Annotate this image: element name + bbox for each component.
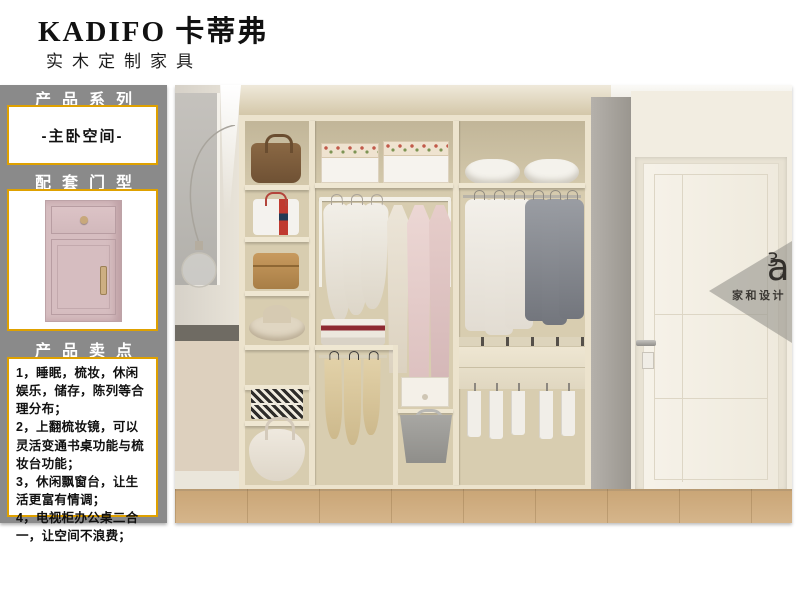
door-handle: [636, 340, 656, 346]
door-style-box: [7, 189, 158, 331]
door-lower-panel: [51, 239, 116, 315]
sun-hat: [249, 315, 305, 341]
shelf: [315, 183, 453, 188]
shelf: [459, 183, 585, 188]
scarf-1: [324, 359, 342, 439]
divider-panel: [309, 121, 315, 485]
dress-pink-1: [407, 205, 431, 389]
shirt-gray-3: [559, 199, 584, 319]
baseboard: [175, 471, 239, 491]
gray-wall-strip: [591, 97, 631, 491]
door-lock: [642, 352, 654, 369]
selling-point-3: 3，休闲飘窗台，让生活更富有情调；: [16, 473, 149, 509]
trousers-4: [539, 391, 553, 439]
series-value: -主卧空间-: [42, 125, 124, 146]
pink-door-graphic: [45, 200, 122, 322]
door-panel-line: [682, 174, 683, 482]
dress-pink-2: [429, 205, 451, 377]
wood-floor: [175, 489, 792, 523]
shelf: [245, 237, 309, 242]
shirt-cream-3: [359, 203, 389, 310]
lidded-box: [401, 377, 449, 407]
shelf: [245, 185, 309, 190]
shelf: [245, 291, 309, 296]
ceiling-soffit: [215, 85, 611, 117]
scarf-2: [344, 359, 361, 445]
shelf: [245, 345, 309, 350]
watermark-brand: 家和设计: [716, 287, 786, 303]
handbag-cream: [249, 429, 305, 481]
watermark: a3® 家和设计: [716, 249, 786, 303]
brand-title: KADIFO 卡蒂弗: [38, 8, 268, 50]
door-pull-handle: [100, 266, 107, 295]
folded-knitwear: [251, 389, 303, 419]
folded-clothes-stack: [321, 319, 385, 345]
brand-subtitle: 实木定制家具: [46, 47, 202, 72]
trousers-3: [511, 391, 525, 435]
watermark-logo: a3®: [767, 246, 786, 289]
storage-box-floral-2: [383, 141, 449, 183]
trousers-2: [489, 391, 503, 439]
storage-box-floral-1: [321, 143, 379, 183]
door-drawer-panel: [51, 206, 116, 234]
selling-point-1: 1，睡眠，梳妆，休闲娱乐，储存，陈列等合理分布；: [16, 364, 149, 418]
window-ledge: [175, 325, 239, 341]
showroom-photo: a3® 家和设计: [175, 85, 792, 523]
pillow-1: [465, 159, 520, 185]
pants-rack: [459, 337, 585, 346]
scarf-3: [362, 359, 380, 435]
trousers-1: [467, 391, 481, 437]
rack-post: [319, 199, 322, 287]
door-panel-line: [654, 398, 768, 399]
handbag-brown: [251, 143, 301, 183]
series-value-box: -主卧空间-: [7, 105, 158, 165]
divider-panel: [453, 121, 459, 485]
shelf: [315, 345, 395, 350]
pillow-2: [524, 159, 579, 185]
selling-point-2: 2，上翻梳妆镜，可以灵活变通书桌功能与梳妆台功能；: [16, 418, 149, 472]
handbag-tan: [253, 253, 299, 289]
selling-point-4: 4，电视柜办公桌二合一，让空间不浪费；: [16, 509, 149, 545]
door-knob: [80, 216, 88, 224]
sidebar: 产品系列 -主卧空间- 配套门型 产品卖点 1，睡眠，梳妆，休闲娱乐，储存，陈列…: [0, 85, 167, 523]
divider-panel: [393, 345, 398, 485]
trousers-5: [561, 391, 575, 436]
catalog-page: KADIFO 卡蒂弗 实木定制家具 产品系列 -主卧空间- 配套门型 产品卖点 …: [0, 0, 800, 600]
lower-wall: [175, 341, 239, 491]
felt-basket: [400, 415, 452, 463]
drawer-unit: [459, 346, 585, 389]
selling-points-box: 1，睡眠，梳妆，休闲娱乐，储存，陈列等合理分布； 2，上翻梳妆镜，可以灵活变通书…: [7, 357, 158, 517]
wardrobe-cabinet: [239, 115, 591, 491]
pendant-lamp: [175, 125, 239, 315]
handbag-white-red-stripe: [253, 199, 299, 235]
